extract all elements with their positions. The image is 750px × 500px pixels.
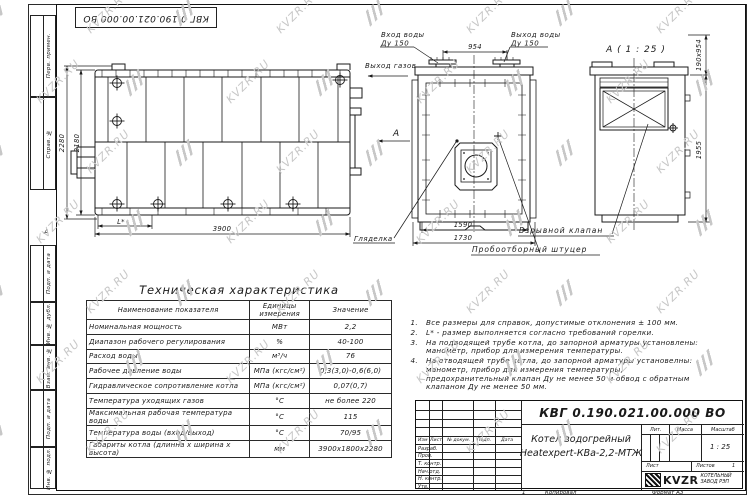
table-cell: 40-100 xyxy=(310,334,392,349)
label-view-arrow: А xyxy=(392,129,400,139)
table-cell: 0,3(3,0)-0,6(6,0) xyxy=(310,364,392,379)
note-item: 1.Все размеры для справок, допустимые от… xyxy=(406,319,706,328)
format-label: Формат А3 xyxy=(652,490,683,496)
drawing-sheet: Перв. примен. Справ. № Подп. и дата Инв.… xyxy=(0,0,750,500)
label-water-inlet-dn: Ду 150 xyxy=(380,40,409,48)
table-cell: 70/95 xyxy=(310,425,392,440)
sheet-label: Лист xyxy=(646,463,659,469)
table-row: Габариты котла (длинна х ширина х высота… xyxy=(87,440,392,457)
view-a-title: А ( 1 : 25 ) xyxy=(605,45,666,55)
change-col-data: Дата xyxy=(501,438,513,443)
change-col-doc: № докум. xyxy=(447,438,470,443)
table-cell: Рабочее давление воды xyxy=(87,364,250,379)
notes-list: 1.Все размеры для справок, допустимые от… xyxy=(406,319,706,393)
company-name: КОТЕЛЬНЫЙ ЗАВОД РЭП xyxy=(700,474,731,485)
table-row: Максимальная рабочая температура воды°С1… xyxy=(87,408,392,425)
product-name-line2: Heatexpert-КВа-2,2-МТЖ xyxy=(520,447,642,461)
table-cell: % xyxy=(250,334,310,349)
label-sampling-fitting: Пробоотборный штуцер xyxy=(472,245,587,254)
spec-table-body: Номинальная мощностьМВт2,2Диапазон рабоч… xyxy=(87,320,392,458)
mass-label: Масса xyxy=(677,427,693,433)
dim-1590: 1590 xyxy=(454,221,473,229)
role-prov: Пров. xyxy=(418,453,433,459)
sheets-value: 1 xyxy=(732,463,735,469)
table-row: Расход водым³/ч76 xyxy=(87,349,392,364)
product-name-line1: Котел водогрейный xyxy=(531,433,631,447)
detail-view-a: А ( 1 : 25 ) 190х954 1955 Взрывной клапа… xyxy=(518,35,710,236)
copied-label: Копировал xyxy=(545,490,576,496)
table-cell: Диапазон рабочего регулирования xyxy=(87,334,250,349)
table-cell: Максимальная рабочая температура воды xyxy=(87,408,250,425)
table-cell: мм xyxy=(250,440,310,457)
table-cell: 115 xyxy=(310,408,392,425)
table-cell: Гидравлическое сопротивление котла xyxy=(87,379,250,394)
table-cell: °С xyxy=(250,408,310,425)
company-logo-block: KVZR КОТЕЛЬНЫЙ ЗАВОД РЭП xyxy=(642,471,743,489)
front-view: 954 1590 1730 Вход воды Ду 150 Выход вод… xyxy=(353,31,600,255)
company-name-line2: ЗАВОД РЭП xyxy=(700,480,731,486)
dim-190x954: 190х954 xyxy=(695,39,703,71)
role-nach-otd: Нач.отд. xyxy=(418,469,440,475)
table-cell: 0,07(0,7) xyxy=(310,379,392,394)
table-row: Температура уходящих газов°Сне более 220 xyxy=(87,393,392,408)
table-cell: Расход воды xyxy=(87,349,250,364)
label-water-inlet: Вход воды xyxy=(381,31,425,39)
change-col-izm: Изм xyxy=(418,438,428,443)
role-utv: Утв. xyxy=(418,484,429,490)
note-item: 2.L* - размер выполняется согласно требо… xyxy=(406,329,706,338)
table-cell: Температура уходящих газов xyxy=(87,393,250,408)
sheets-label: Листов xyxy=(696,463,715,469)
scale-label: Масштаб xyxy=(711,427,735,433)
table-cell: 2,2 xyxy=(310,320,392,335)
spec-table-header-row: Наименование показателя Единицы измерени… xyxy=(87,301,392,320)
table-cell: МПа (кгс/см²) xyxy=(250,379,310,394)
label-gas-outlet: Выход газов xyxy=(365,62,416,70)
label-water-outlet: Выход воды xyxy=(511,31,561,39)
change-col-podp: Подп. xyxy=(477,438,491,443)
role-razrab: Разраб. xyxy=(418,446,438,452)
table-row: Рабочее давление водыМПа (кгс/см²)0,3(3,… xyxy=(87,364,392,379)
dim-2280: 2280 xyxy=(58,134,66,153)
table-cell: МВт xyxy=(250,320,310,335)
dim-1730: 1730 xyxy=(454,234,473,242)
table-cell: 3900х1800х2280 xyxy=(310,440,392,457)
role-t-kontr: Т. контр. xyxy=(418,461,441,467)
dim-3900: 3900 xyxy=(213,225,232,233)
col-header-name: Наименование показателя xyxy=(87,301,250,320)
note-item: 4.На отводящей трубе котла, до запорной … xyxy=(406,357,706,392)
table-cell: Температура воды (вход/выход) xyxy=(87,425,250,440)
title-block-doc-number: КВГ 0.190.021.00.000 ВО xyxy=(521,401,744,424)
note-item: 3.На подводящей трубе котла, до запорной… xyxy=(406,339,706,357)
role-n-kontr: Н. контр. xyxy=(418,476,442,482)
side-view: 2280 2180 L* 3900 xyxy=(58,64,362,237)
dim-1955: 1955 xyxy=(695,141,703,160)
scale-value: 1 : 25 xyxy=(710,443,730,451)
col-header-value: Значение xyxy=(310,301,392,320)
table-row: Диапазон рабочего регулирования%40-100 xyxy=(87,334,392,349)
table-row: Температура воды (вход/выход)°С70/95 xyxy=(87,425,392,440)
label-sight-glass: Гляделка xyxy=(354,235,393,243)
kvzr-logo-icon xyxy=(645,473,661,487)
table-cell: м³/ч xyxy=(250,349,310,364)
dim-954: 954 xyxy=(468,43,482,51)
table-cell: не более 220 xyxy=(310,393,392,408)
title-block: КВГ 0.190.021.00.000 ВО Котел водогрейны… xyxy=(415,400,743,489)
table-cell: Номинальная мощность xyxy=(87,320,250,335)
label-water-outlet-dn: Ду 150 xyxy=(510,40,539,48)
col-header-units: Единицы измерения xyxy=(250,301,310,320)
dim-2180: 2180 xyxy=(73,134,81,153)
spec-table-title: Техническая характеристика xyxy=(86,283,392,297)
change-col-list: Лист xyxy=(430,438,442,443)
spec-table: Наименование показателя Единицы измерени… xyxy=(86,300,392,458)
label-explosion-valve: Взрывной клапан xyxy=(519,226,603,235)
table-cell: Габариты котла (длинна х ширина х высота… xyxy=(87,440,250,457)
table-cell: °С xyxy=(250,425,310,440)
table-row: Гидравлическое сопротивление котлаМПа (к… xyxy=(87,379,392,394)
table-cell: МПа (кгс/см²) xyxy=(250,364,310,379)
table-row: Номинальная мощностьМВт2,2 xyxy=(87,320,392,335)
lit-label: Лит. xyxy=(650,427,662,433)
dim-l-star: L* xyxy=(117,218,125,226)
table-cell: °С xyxy=(250,393,310,408)
table-cell: 76 xyxy=(310,349,392,364)
company-abbr: KVZR xyxy=(663,474,698,487)
product-name: Котел водогрейный Heatexpert-КВа-2,2-МТЖ xyxy=(521,424,641,490)
copy-number: 1 xyxy=(522,490,526,496)
